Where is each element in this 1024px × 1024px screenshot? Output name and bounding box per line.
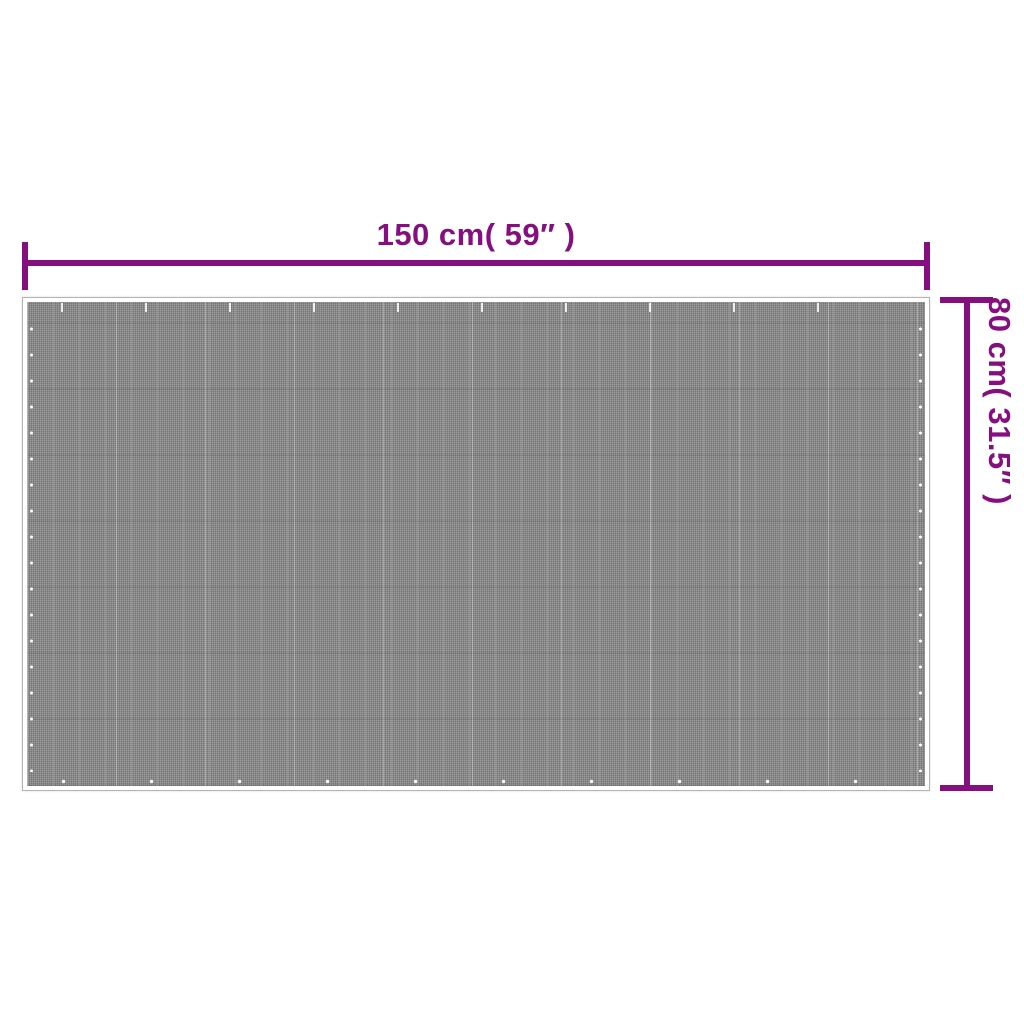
height-dimension-line [964, 299, 970, 788]
mat-stitches-top [61, 303, 891, 312]
width-dimension-cap-right [924, 242, 930, 290]
mat-eyelets-right [918, 316, 923, 772]
mat [22, 297, 930, 791]
mat-eyelets-left [29, 316, 34, 772]
width-dimension-cap-left [22, 242, 28, 290]
width-dimension-line [22, 260, 930, 266]
width-dimension-label: 150 cm( 59″ ) [22, 219, 930, 250]
mat-stitches-bottom [61, 779, 891, 784]
product-dimension-image: 150 cm( 59″ ) 80 cm( 31.5″ ) [0, 0, 1024, 1024]
height-dimension-label: 80 cm( 31.5″ ) [984, 297, 1015, 791]
mat-surface [27, 302, 925, 786]
